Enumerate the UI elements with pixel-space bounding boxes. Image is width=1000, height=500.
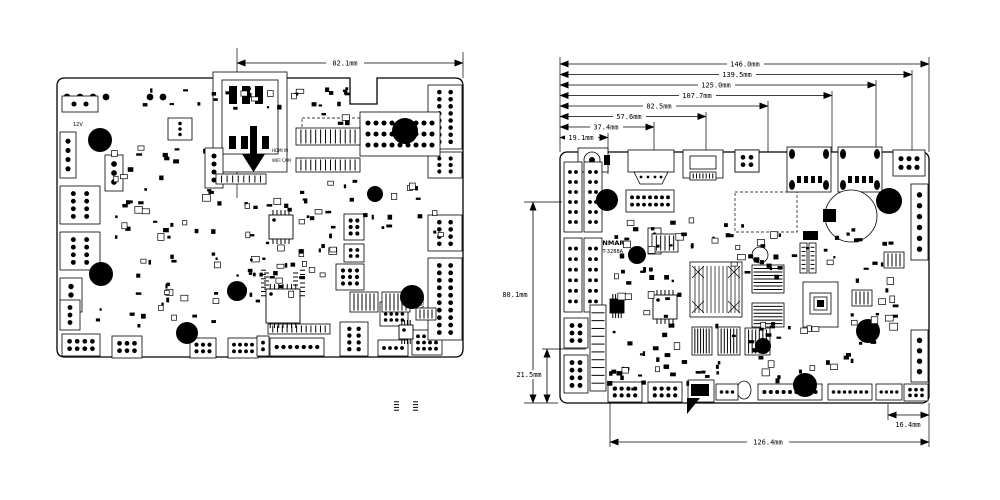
hdmi-in-connector: HDMI IN [272,148,288,153]
dimension-label: 82.5mm [646,103,671,111]
dimension-label: 37.4mm [593,124,618,132]
dimension-label: 139.5mm [722,71,752,79]
pcb-dimension-drawing: 82.1mm HDMI IN WIFI CAM 12V [0,0,1000,500]
usb-ports-a [787,147,831,192]
pmic-socket [803,282,838,327]
power-12v-label: 12V [73,122,83,128]
sim-card-module [213,72,287,172]
dimension-label: 107.7mm [682,92,712,100]
dimension-label: 19.1mm [568,134,593,142]
drawing-canvas: 82.1mm HDMI IN WIFI CAM 12V [0,0,1000,500]
right-board-bottom-dimensions: 126.4mm 16.4mm [610,403,929,447]
dimension-label-lower-height: 21.5mm [516,371,541,379]
dimension-label-bottom-right: 16.4mm [895,421,920,429]
hdmi-in-label: HDMI IN [272,148,288,153]
dimension-label-height: 80.1mm [502,291,527,299]
cpu-bga [690,262,742,317]
dimension-label: 125.0mm [701,82,731,90]
dimension-label-width: 82.1mm [332,60,357,68]
dimension-label: 57.6mm [616,113,641,121]
wifi-cam-label: WIFI CAM [272,158,291,163]
wifi-cam-connector: WIFI CAM [272,158,291,163]
dimension-label: 146.0mm [730,61,760,69]
polarity-triangle-icon [687,398,700,414]
dimension-label-bottom: 126.4mm [753,439,783,447]
usb-ports-b [838,147,882,192]
buzzer [737,381,751,399]
keyed-connector [687,380,714,414]
